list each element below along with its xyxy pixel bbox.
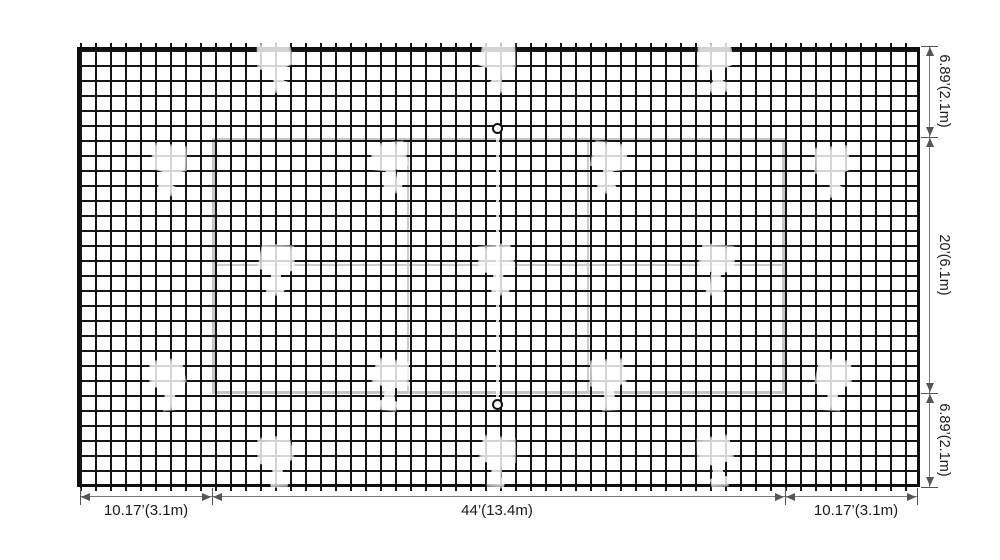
net-line bbox=[496, 130, 499, 402]
dimension-arrow bbox=[926, 383, 934, 392]
dimension-label-right-middle: 20’(6.1m) bbox=[936, 234, 952, 295]
dimension-tick bbox=[917, 488, 918, 505]
dimension-arrow bbox=[926, 138, 934, 147]
dimension-arrow bbox=[926, 394, 934, 403]
net-post-top bbox=[492, 123, 503, 134]
net-post-bottom bbox=[492, 399, 503, 410]
dimension-arrow bbox=[202, 493, 211, 501]
dimension-label-bottom-center: 44’(13.4m) bbox=[461, 502, 533, 519]
dimension-arrow bbox=[775, 493, 784, 501]
dimension-arrow bbox=[907, 493, 916, 501]
dimension-arrow bbox=[786, 493, 795, 501]
dimension-arrow bbox=[926, 127, 934, 136]
dimension-arrow bbox=[213, 493, 222, 501]
dimension-arrow bbox=[926, 477, 934, 486]
dimension-label-right-bottom: 6.89’(2.1m) bbox=[936, 403, 952, 476]
dimension-arrow bbox=[81, 493, 90, 501]
dimension-label-bottom-right: 10.17’(3.1m) bbox=[814, 502, 898, 519]
dimension-label-bottom-left: 10.17’(3.1m) bbox=[104, 502, 188, 519]
dimension-label-right-top: 6.89’(2.1m) bbox=[936, 54, 952, 127]
badminton-net-diagram: 10.17’(3.1m) 44’(13.4m) 10.17’(3.1m) 6.8… bbox=[0, 0, 1000, 560]
dimension-arrow bbox=[926, 47, 934, 56]
dimension-line-right bbox=[929, 46, 930, 487]
dimension-tick bbox=[921, 487, 938, 488]
